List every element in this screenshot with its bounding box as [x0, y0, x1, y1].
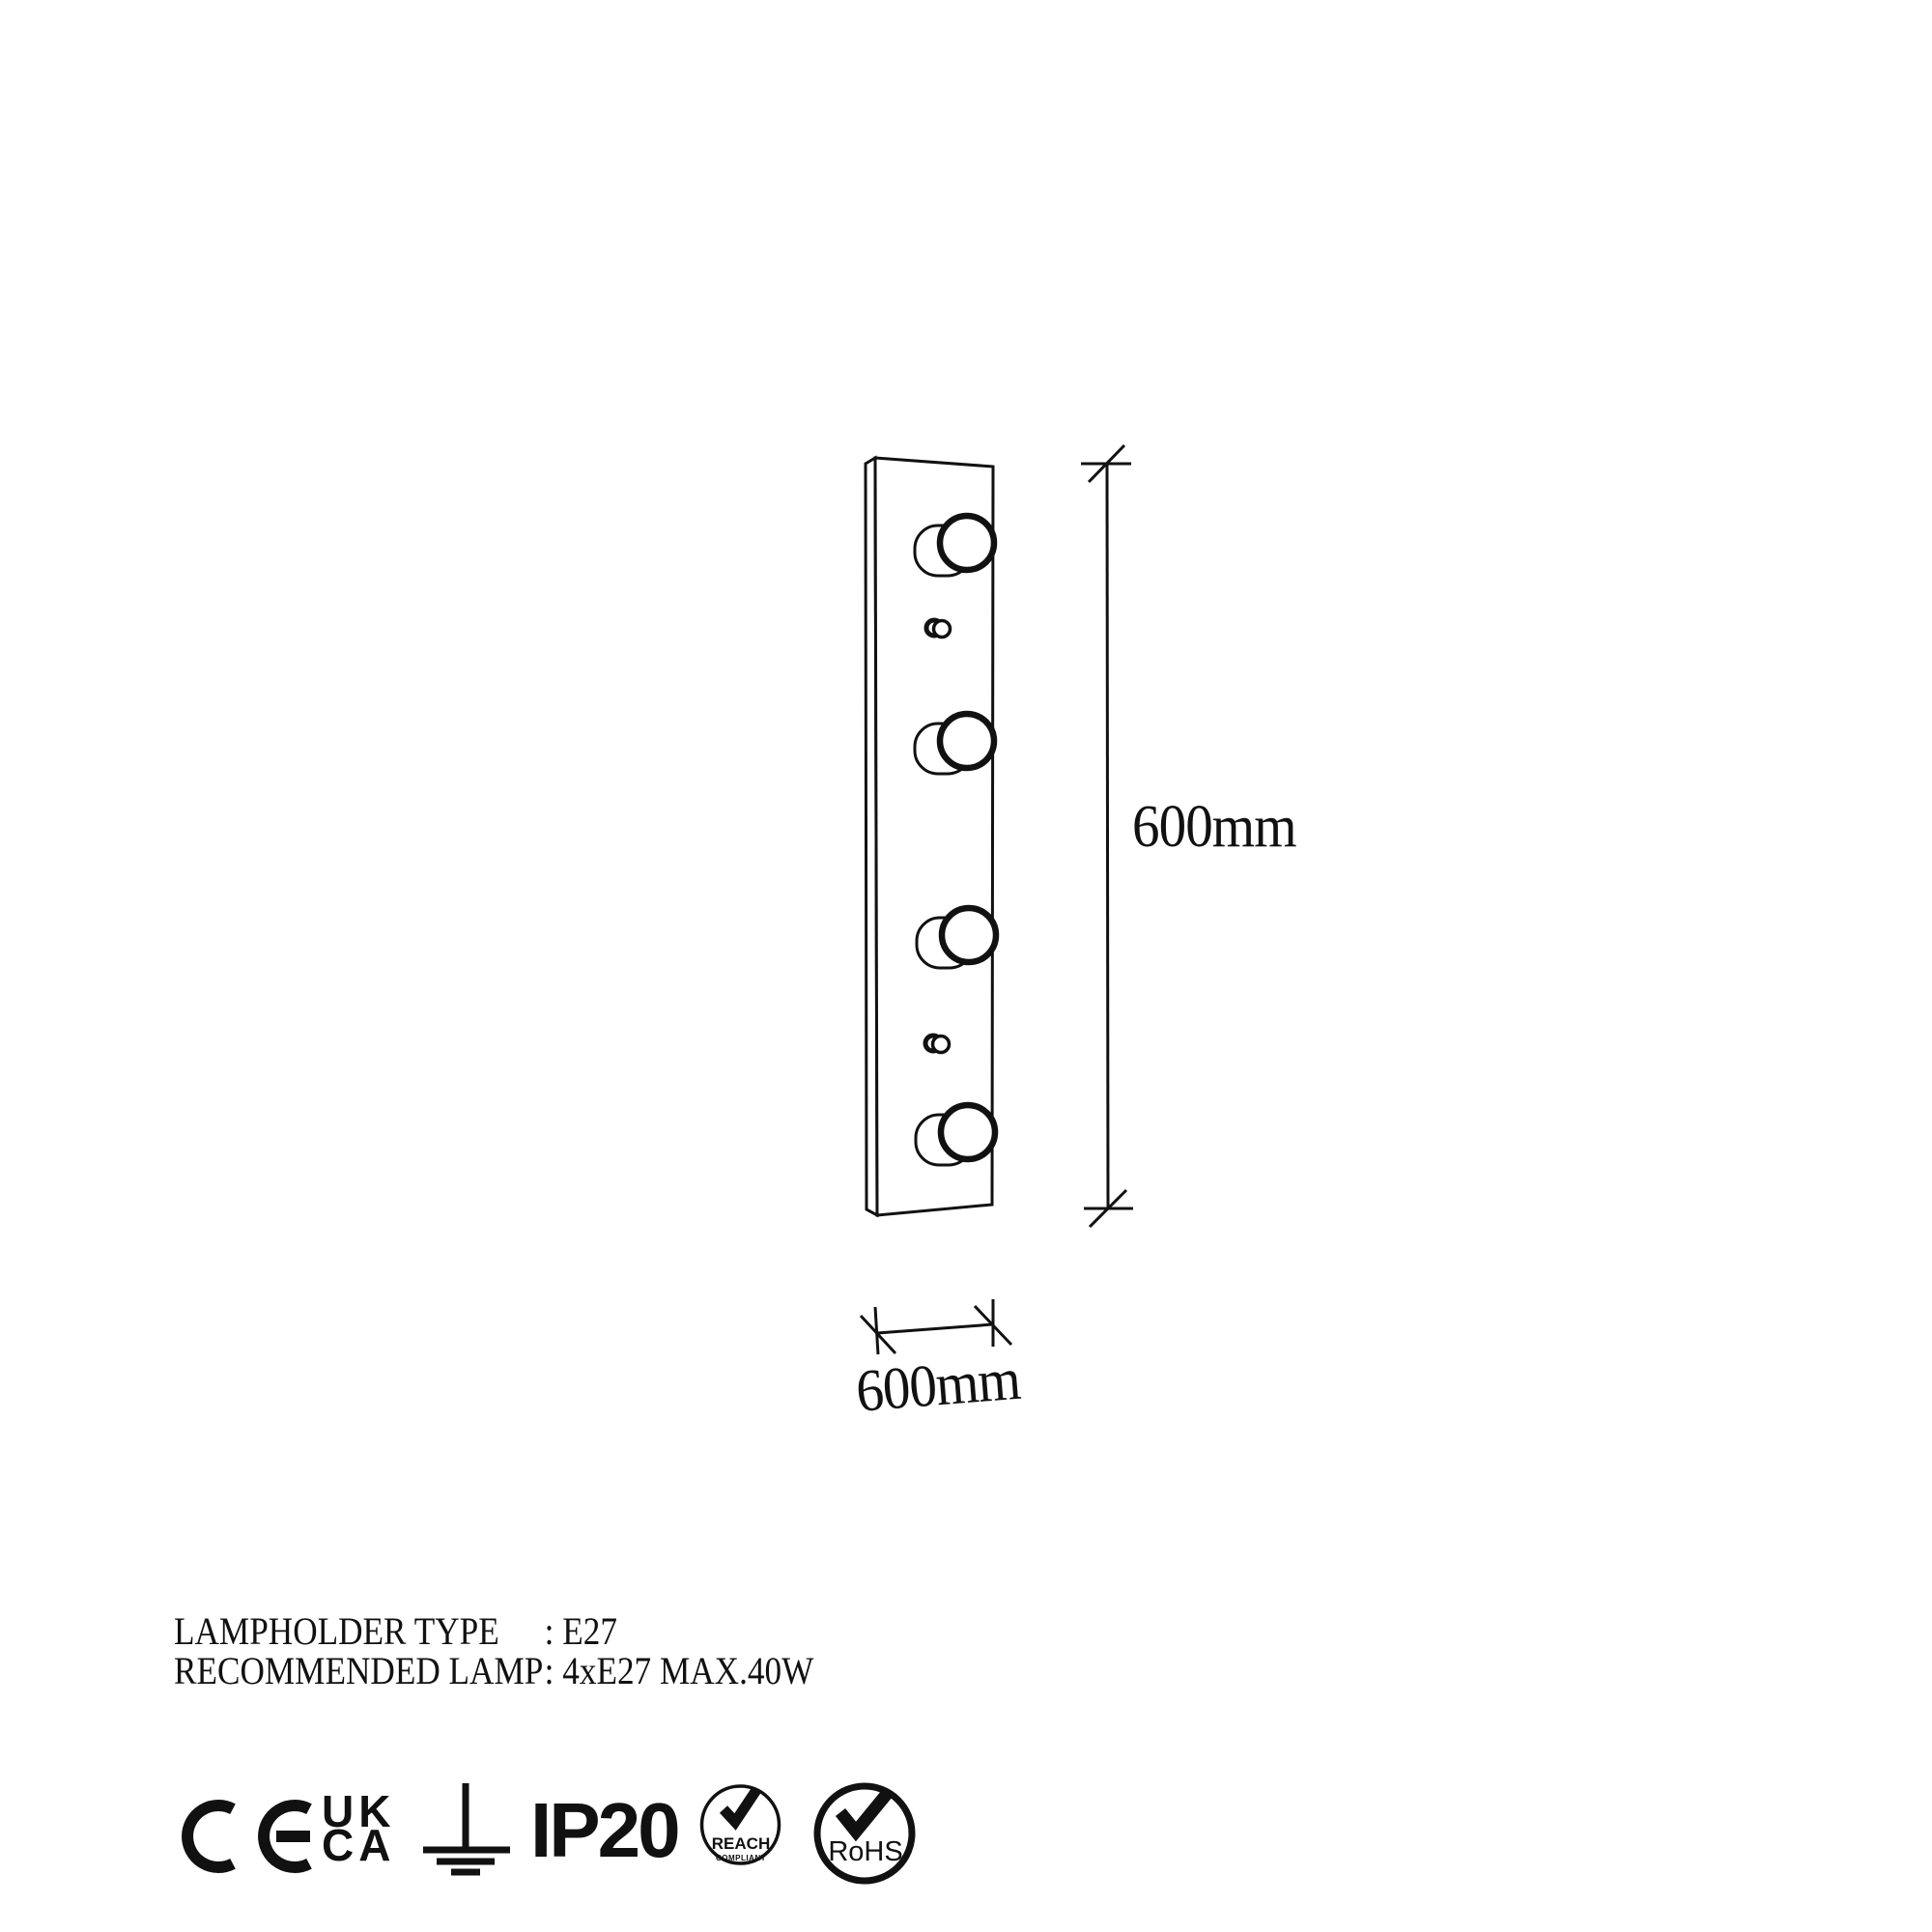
lamp-fixture-drawing	[866, 458, 996, 1215]
spec-value: : E27	[545, 1609, 617, 1653]
screw-face	[934, 621, 951, 638]
spec-line-lampholder-type: LAMPHOLDER TYPE: E27	[174, 1612, 617, 1651]
reach-label: REACH	[712, 1835, 770, 1852]
height-dimension-label: 600mm	[1132, 797, 1296, 857]
reach-checkmark-icon	[724, 1790, 756, 1822]
width-dimension-line	[861, 1299, 1011, 1354]
spec-line-recommended-lamp: RECOMMENDED LAMP: 4xE27 MAX.40W	[174, 1652, 813, 1690]
rohs-checkmark-icon	[840, 1794, 887, 1832]
dimension-line	[877, 1324, 993, 1333]
ce-letter-c	[187, 1805, 233, 1867]
spec-label: LAMPHOLDER TYPE	[174, 1612, 545, 1651]
spec-label: RECOMMENDED LAMP	[174, 1652, 545, 1690]
product-dimension-sheet: 600mm 600mm LAMPHOLDER TYPE: E27 RECOMME…	[0, 0, 1932, 1932]
rohs-label: RoHS	[828, 1838, 902, 1866]
screw-face	[933, 1037, 950, 1053]
lampholder-face	[940, 516, 994, 570]
dimension-line	[1107, 465, 1108, 1208]
lampholder-face	[941, 1105, 995, 1159]
spec-value: : 4xE27 MAX.40W	[545, 1649, 814, 1692]
width-dimension-label: 600mm	[854, 1350, 1022, 1422]
ce-mark-icon	[187, 1805, 310, 1867]
height-dimension-line	[1081, 445, 1133, 1227]
reach-compliant-label: COMPLIANT	[716, 1855, 766, 1862]
ip-rating-label: IP20	[530, 1792, 678, 1869]
lampholder-face	[940, 714, 994, 768]
ukca-bottom: CA	[322, 1829, 395, 1862]
earth-ground-icon	[423, 1783, 510, 1872]
ukca-mark-icon: UK CA	[322, 1795, 395, 1862]
lampholder-face	[942, 908, 996, 962]
